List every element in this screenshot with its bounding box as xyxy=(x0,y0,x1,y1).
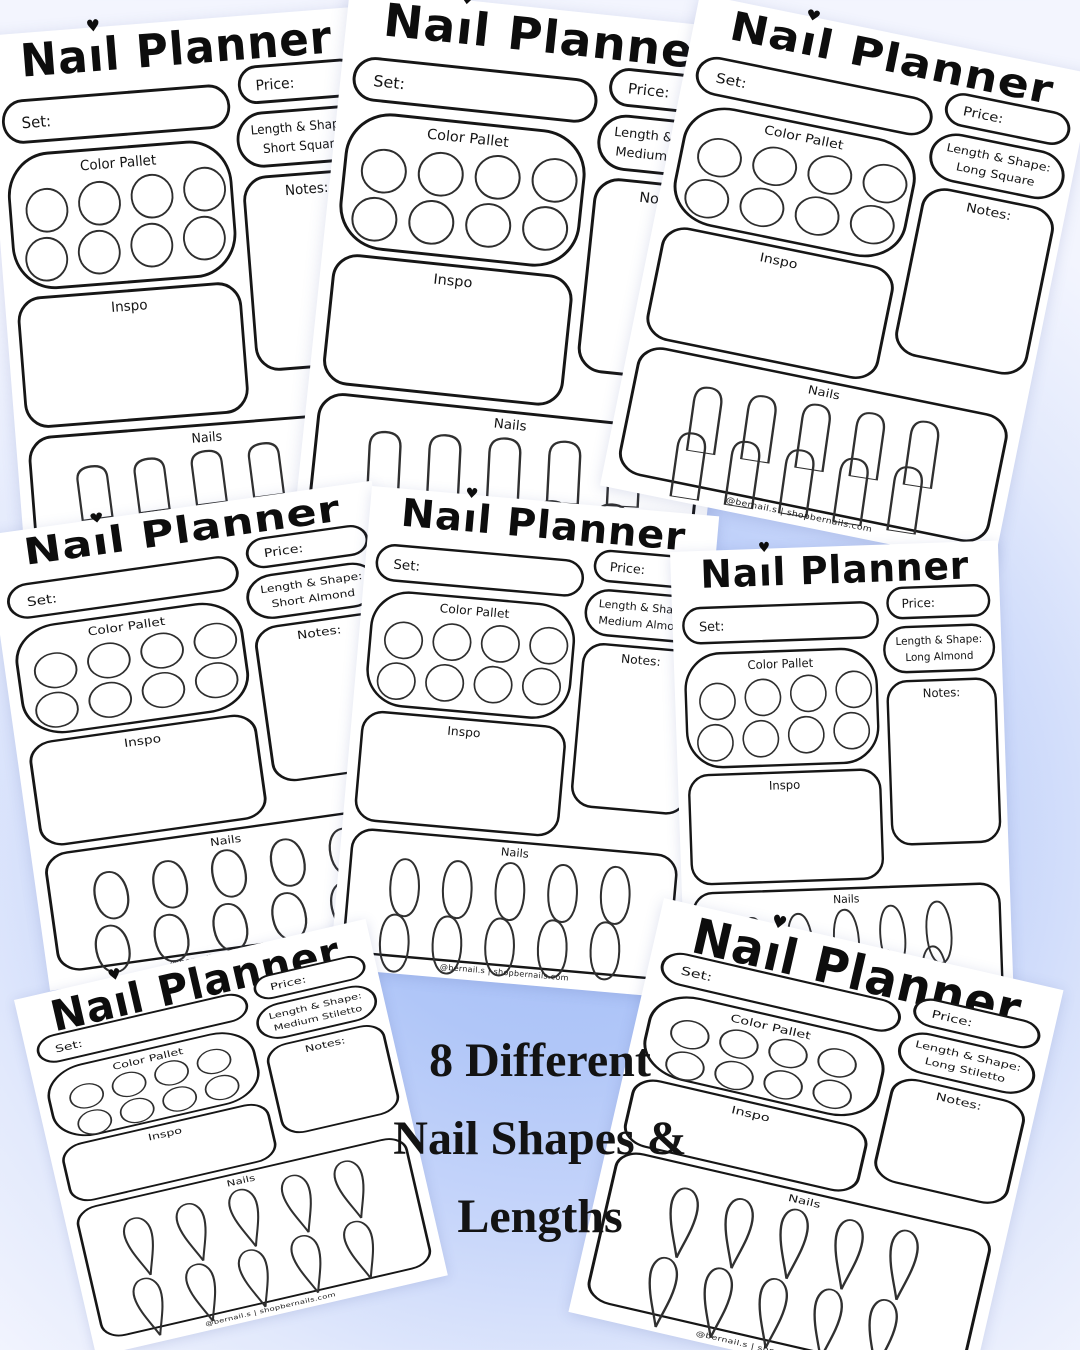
color-swatch-circle xyxy=(417,151,465,198)
color-swatch-circle xyxy=(407,199,455,246)
set-label: Set: xyxy=(393,556,421,574)
inspo-box: Inspo xyxy=(353,709,568,838)
color-swatch-circle xyxy=(786,714,826,755)
heart-icon: ♥ xyxy=(459,0,477,10)
set-field: Set: xyxy=(0,83,232,145)
color-swatch-circle xyxy=(85,678,135,721)
nail-shape xyxy=(143,856,197,913)
color-swatches xyxy=(368,620,571,706)
color-pallet-box: Color Pallet xyxy=(335,109,590,271)
color-swatch-circle xyxy=(521,667,561,706)
color-swatch-circle xyxy=(192,659,242,702)
notes-label: Notes: xyxy=(888,679,994,702)
color-swatch-circle xyxy=(190,619,240,662)
color-swatch-circle xyxy=(761,1067,805,1103)
color-swatch-circle xyxy=(464,202,512,249)
color-swatches xyxy=(685,669,880,764)
color-swatch-circle xyxy=(473,665,513,704)
color-pallet-box: Color Pallet xyxy=(683,647,881,770)
length-shape-field: Length & Shape: Long Almond xyxy=(882,623,996,674)
nail-shape xyxy=(882,460,930,535)
color-swatch-circle xyxy=(766,1036,810,1072)
inspo-box: Inspo xyxy=(16,280,251,429)
nail-shape xyxy=(184,445,234,506)
color-swatch-circle xyxy=(138,668,188,711)
price-label: Price: xyxy=(930,1007,974,1029)
color-swatch-circle xyxy=(383,621,423,660)
color-swatch-circle xyxy=(521,205,569,252)
collage-canvas: 8 Different Nail Shapes & Lengths Na♥ıl … xyxy=(0,0,1080,1350)
notes-box: Notes: xyxy=(870,1074,1028,1209)
color-swatch-circle xyxy=(832,710,872,751)
nail-shape xyxy=(746,1273,797,1350)
nail-shape xyxy=(260,834,314,891)
set-label: Set: xyxy=(680,964,714,984)
price-label: Price: xyxy=(269,974,307,993)
nail-shape xyxy=(877,1225,928,1305)
color-swatch-circle xyxy=(695,722,735,763)
set-field: Set: xyxy=(682,601,880,646)
swatch-row xyxy=(368,661,570,706)
color-swatch-circle xyxy=(128,171,176,221)
color-swatch-circle xyxy=(480,624,520,663)
caption-line-2: Nail Shapes & xyxy=(330,1100,750,1178)
color-pallet-box: Color Pallet xyxy=(5,137,240,292)
color-swatch-circle xyxy=(743,677,783,718)
nail-shape xyxy=(421,430,468,498)
color-swatch-circle xyxy=(792,193,842,239)
color-swatch-circle xyxy=(810,1076,854,1112)
color-swatch-circle xyxy=(180,213,228,263)
nail-shape xyxy=(202,845,256,902)
set-label: Set: xyxy=(21,112,52,133)
heart-icon: ♥ xyxy=(85,16,102,37)
set-label: Set: xyxy=(699,618,725,634)
price-label: Price: xyxy=(627,80,670,102)
heart-icon: ♥ xyxy=(758,539,772,556)
color-swatch-circle xyxy=(815,1045,859,1081)
color-swatch-circle xyxy=(805,152,855,198)
nail-shape xyxy=(126,453,176,514)
nail-shape xyxy=(801,1284,852,1350)
nail-shape xyxy=(767,1204,818,1284)
color-swatch-circle xyxy=(23,234,71,284)
color-swatch-circle xyxy=(360,148,408,195)
color-swatch-circle xyxy=(847,202,897,248)
price-label: Price: xyxy=(901,595,935,611)
color-swatch-circle xyxy=(788,673,828,714)
color-swatch-circle xyxy=(75,227,123,277)
color-swatch-circle xyxy=(425,663,465,702)
title-part: Na xyxy=(381,0,459,54)
color-swatch-circle xyxy=(181,164,229,214)
color-swatch-circle xyxy=(432,623,472,662)
heart-icon: ♥ xyxy=(804,6,823,26)
color-swatch-circle xyxy=(529,626,569,665)
set-label: Set: xyxy=(54,1037,84,1055)
notes-box: Notes: xyxy=(886,677,1002,846)
nail-shape xyxy=(584,920,625,982)
caption: 8 Different Nail Shapes & Lengths xyxy=(330,1022,750,1255)
inspo-label: Inspo xyxy=(19,284,240,323)
nail-shape xyxy=(856,1294,907,1350)
color-swatch-circle xyxy=(137,629,187,672)
color-swatch-circle xyxy=(530,157,578,204)
color-swatch-circle xyxy=(376,662,416,701)
inspo-box: Inspo xyxy=(321,252,575,408)
color-swatch-circle xyxy=(682,176,732,222)
nail-shape xyxy=(437,859,478,921)
inspo-box: Inspo xyxy=(687,768,884,886)
nail-shape xyxy=(827,452,875,527)
nail-shape xyxy=(480,433,527,501)
nail-shape xyxy=(384,857,425,919)
heart-icon: ♥ xyxy=(465,485,480,503)
color-swatch-circle xyxy=(32,688,82,731)
color-swatch-circle xyxy=(834,669,874,710)
nail-shape xyxy=(540,437,587,505)
color-swatch-circle xyxy=(31,649,81,692)
color-pallet-box: Color Pallet xyxy=(363,588,578,722)
title-part: Na xyxy=(18,30,90,89)
color-swatch-circle xyxy=(128,220,176,270)
nail-shape xyxy=(241,437,291,498)
swatch-row xyxy=(341,195,579,252)
title-part: Na xyxy=(726,3,805,63)
swatch-row xyxy=(344,147,582,204)
color-swatches xyxy=(341,147,581,253)
nail-shape xyxy=(84,867,138,924)
color-swatch-circle xyxy=(741,718,781,759)
set-label: Set: xyxy=(714,70,748,92)
color-swatch-circle xyxy=(75,178,123,228)
set-label: Set: xyxy=(372,72,405,94)
nail-shape xyxy=(542,862,583,924)
swatch-row xyxy=(370,620,572,665)
price-label: Price: xyxy=(609,560,646,578)
color-swatch-circle xyxy=(860,161,910,207)
set-label: Set: xyxy=(26,591,58,610)
color-swatch-circle xyxy=(698,681,738,722)
color-swatch-circle xyxy=(474,154,522,201)
price-label: Price: xyxy=(263,541,304,560)
nail-shape xyxy=(228,1243,285,1313)
inspo-label: Inspo xyxy=(690,770,879,795)
notes-box: Notes: xyxy=(891,184,1058,379)
nail-shape xyxy=(822,1214,873,1294)
color-swatch-circle xyxy=(350,196,398,243)
title-part: Na xyxy=(21,522,96,574)
color-swatch-circle xyxy=(23,185,71,235)
price-label: Price: xyxy=(255,74,295,94)
color-swatches xyxy=(8,164,238,285)
color-swatch-circle xyxy=(694,135,744,181)
heart-icon: ♥ xyxy=(88,510,105,528)
color-swatch-circle xyxy=(737,185,787,231)
color-swatch-circle xyxy=(84,639,134,682)
caption-line-1: 8 Different xyxy=(330,1022,750,1100)
nail-shape xyxy=(595,864,636,926)
color-swatch-circle xyxy=(750,144,800,190)
title-part: Na xyxy=(700,551,760,598)
set-field: Set: xyxy=(374,542,586,598)
nail-shape xyxy=(489,861,530,923)
price-label: Price: xyxy=(962,103,1005,126)
caption-line-3: Lengths xyxy=(330,1178,750,1256)
title-part: Na xyxy=(399,490,465,540)
price-field: Price: xyxy=(886,584,991,620)
